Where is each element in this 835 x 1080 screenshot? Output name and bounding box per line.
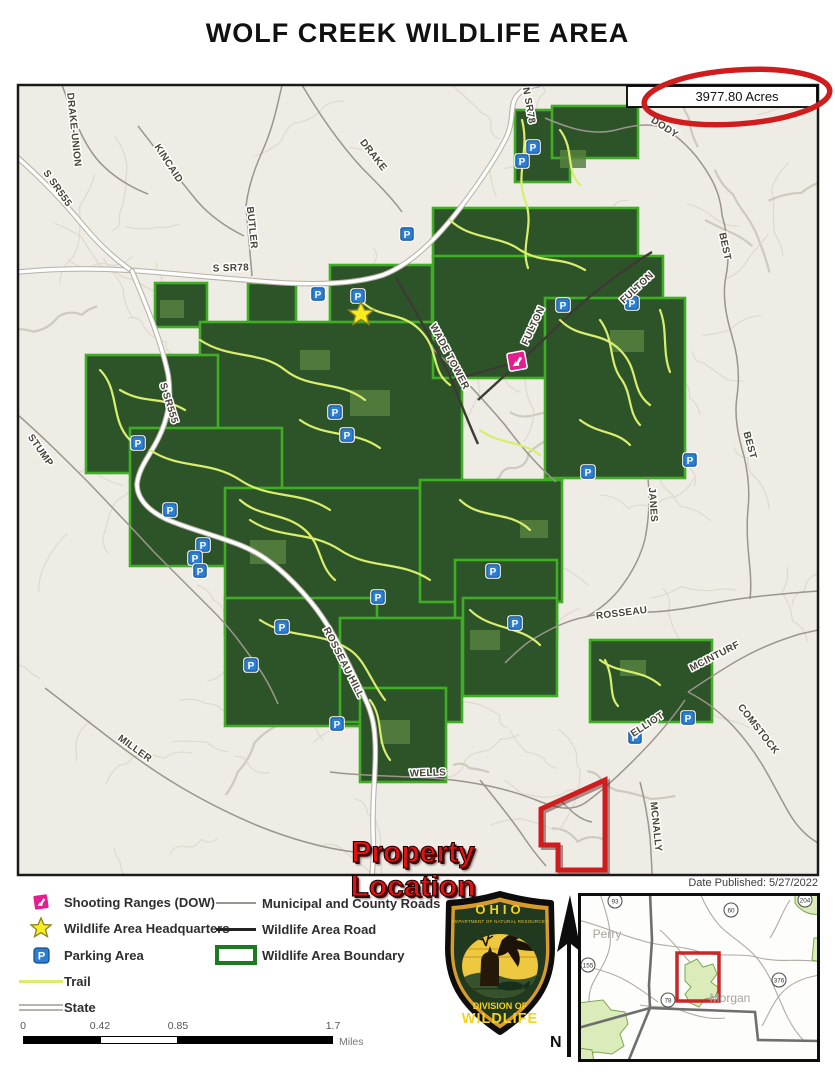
parking-icon: P <box>244 658 258 672</box>
route-shield-number: 60 <box>727 907 735 914</box>
logo-state-text: OHIO <box>475 902 524 917</box>
svg-text:P: P <box>530 143 537 154</box>
route-shield-number: 155 <box>583 962 594 969</box>
logo-wildlife-text: WILDLIFE <box>462 1011 538 1027</box>
svg-text:P: P <box>248 661 255 672</box>
parking-icon: P <box>330 717 344 731</box>
legend-row-wildlife-road: Wildlife Area Road <box>210 918 376 940</box>
parking-icon: P <box>556 298 570 312</box>
legend-label: Wildlife Area Road <box>262 922 376 937</box>
logo-dept-text: DEPARTMENT OF NATURAL RESOURCES <box>452 919 549 924</box>
legend-label: Wildlife Area Headquarters <box>64 921 230 936</box>
svg-text:P: P <box>685 714 692 725</box>
legend-row-state: State <box>18 996 96 1018</box>
parking-icon: P <box>681 711 695 725</box>
scale-tick: 0 <box>20 1020 26 1032</box>
wildlife-parcel <box>248 283 296 327</box>
svg-text:P: P <box>404 230 411 241</box>
municipal-road-line-icon <box>210 902 262 904</box>
parking-icon: P <box>581 465 595 479</box>
scalebar-labels: 0 0.42 0.85 1.7 <box>0 1020 400 1034</box>
legend-row-trail: Trail <box>18 970 91 992</box>
svg-text:P: P <box>37 950 44 962</box>
svg-text:P: P <box>585 468 592 479</box>
road-label: WELLS <box>409 767 446 779</box>
field-patch <box>520 520 548 538</box>
state-line-icon <box>18 1004 64 1011</box>
field-patch <box>160 300 184 318</box>
parking-icon: P <box>275 620 289 634</box>
parking-icon: P <box>371 590 385 604</box>
svg-text:P: P <box>344 431 351 442</box>
parking-icon: P <box>163 503 177 517</box>
parking-icon: P <box>515 154 529 168</box>
shooting-range-icon <box>18 893 64 911</box>
parking-icon: P <box>683 453 697 467</box>
shooting-range-icon <box>507 351 528 372</box>
svg-text:P: P <box>135 439 142 450</box>
parking-icon: P <box>486 564 500 578</box>
svg-text:P: P <box>560 301 567 312</box>
trail-line-icon <box>18 980 64 983</box>
wildlife-road-line-icon <box>210 928 262 931</box>
map-page: WOLF CREEK WILDLIFE AREA PPPPPPPPPPPPPPP… <box>0 0 835 1080</box>
svg-text:P: P <box>519 157 526 168</box>
field-patch <box>300 350 330 370</box>
parking-icon: P <box>188 551 202 565</box>
wildlife-parcel <box>433 208 638 258</box>
field-patch <box>470 630 500 650</box>
field-patch <box>380 720 410 744</box>
legend-label: Shooting Ranges (DOW) <box>64 895 215 910</box>
parking-icon: P <box>400 227 414 241</box>
parking-icon: P <box>131 436 145 450</box>
svg-text:P: P <box>197 567 204 578</box>
inset-county-label: Morgan <box>710 991 751 1005</box>
parking-icon: P <box>328 405 342 419</box>
parking-icon: P <box>508 616 522 630</box>
legend-row-shooting: Shooting Ranges (DOW) <box>18 891 215 913</box>
inset-locator-map: PerryMorgan936020415537678 <box>578 893 820 1062</box>
legend-row-parking: P Parking Area <box>18 944 144 966</box>
svg-text:P: P <box>375 593 382 604</box>
route-shield-number: 93 <box>611 898 619 905</box>
legend-label: Wildlife Area Boundary <box>262 948 404 963</box>
svg-text:P: P <box>315 290 322 301</box>
svg-text:P: P <box>279 623 286 634</box>
route-shield-number: 204 <box>800 897 811 904</box>
wildlife-parcel <box>590 640 712 722</box>
route-shield-number: 78 <box>664 997 672 1004</box>
route-shield-number: 376 <box>774 977 785 984</box>
legend-label: Trail <box>64 974 91 989</box>
svg-text:P: P <box>332 408 339 419</box>
road-label: S SR78 <box>213 262 250 274</box>
svg-text:P: P <box>512 619 519 630</box>
parking-icon: P <box>526 140 540 154</box>
date-published: Date Published: 5/27/2022 <box>688 877 818 889</box>
parking-icon: P <box>351 289 365 303</box>
svg-text:P: P <box>687 456 694 467</box>
svg-text:P: P <box>490 567 497 578</box>
legend-row-boundary: Wildlife Area Boundary <box>210 944 404 966</box>
legend-label: State <box>64 1000 96 1015</box>
scale-unit-label: Miles <box>339 1036 364 1048</box>
legend-row-municipal-roads: Municipal and County Roads <box>210 892 440 914</box>
legend-row-headquarters: Wildlife Area Headquarters <box>18 917 230 939</box>
acreage-value: 3977.80 Acres <box>695 89 779 104</box>
parking-icon: P <box>193 564 207 578</box>
parking-icon: P <box>340 428 354 442</box>
headquarters-star-icon <box>18 916 64 940</box>
scale-tick: 0.42 <box>90 1020 110 1032</box>
boundary-rect-icon <box>210 945 262 965</box>
parking-icon: P <box>18 947 64 964</box>
legend-label: Municipal and County Roads <box>262 896 440 911</box>
scale-tick: 0.85 <box>168 1020 188 1032</box>
svg-text:P: P <box>334 720 341 731</box>
svg-text:P: P <box>167 506 174 517</box>
field-patch <box>610 330 644 352</box>
scalebar <box>23 1036 333 1044</box>
north-letter: N <box>550 1034 562 1051</box>
parking-icon: P <box>196 538 210 552</box>
field-patch <box>560 150 586 168</box>
logo-division-text: DIVISION OF <box>473 1001 528 1011</box>
parking-icon: P <box>311 287 325 301</box>
legend-label: Parking Area <box>64 948 144 963</box>
field-patch <box>620 660 646 676</box>
inset-county-label: Perry <box>593 927 622 941</box>
scale-tick: 1.7 <box>326 1020 341 1032</box>
